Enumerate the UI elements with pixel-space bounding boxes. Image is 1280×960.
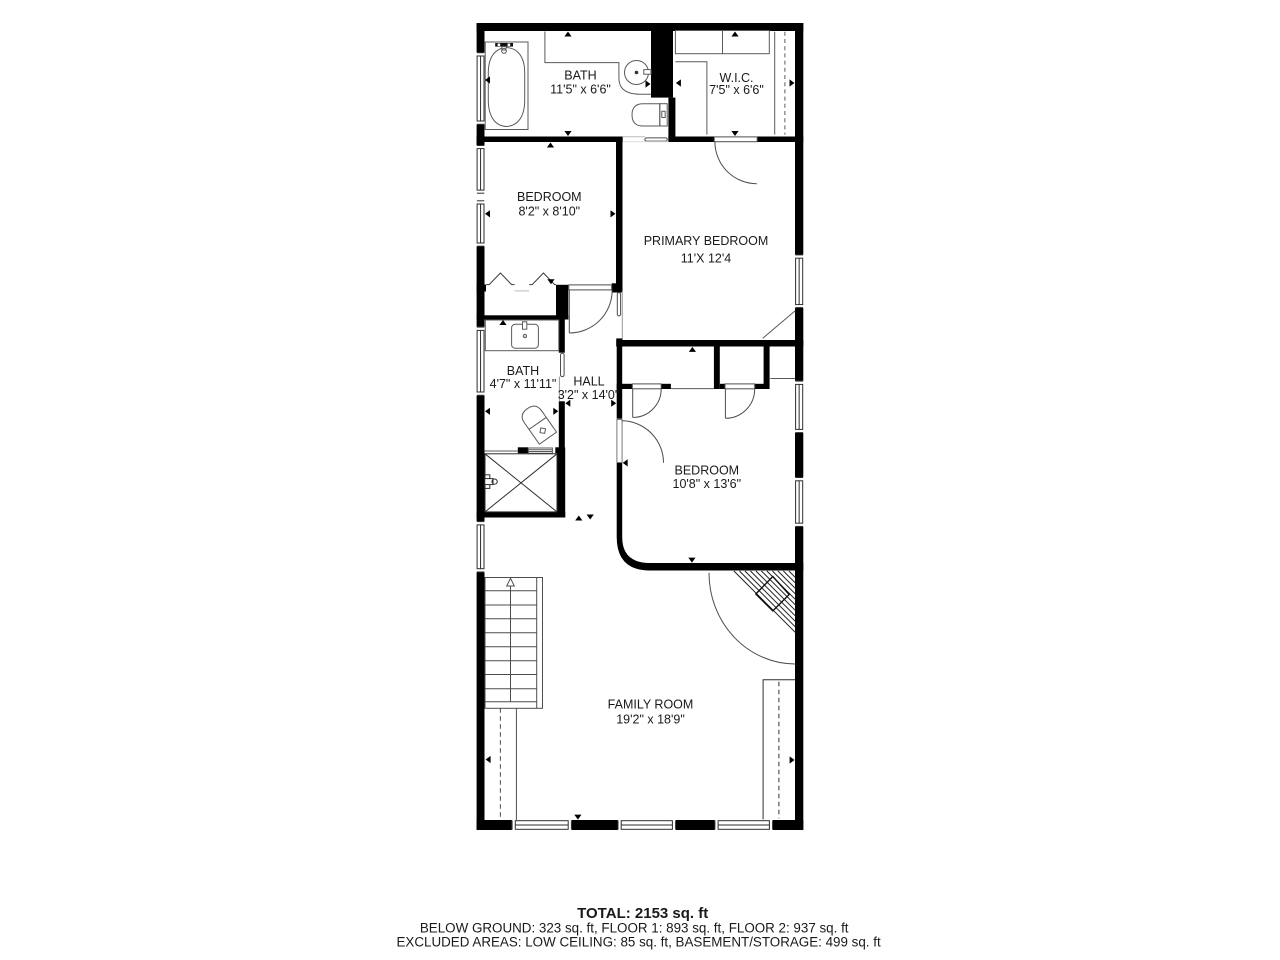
svg-text:8'2" x 8'10": 8'2" x 8'10" — [518, 204, 580, 218]
svg-text:7'5" x 6'6": 7'5" x 6'6" — [709, 83, 764, 97]
svg-text:BEDROOM: BEDROOM — [517, 190, 582, 204]
svg-text:BATH: BATH — [564, 69, 596, 83]
svg-text:PRIMARY BEDROOM: PRIMARY BEDROOM — [644, 234, 769, 248]
svg-text:EXCLUDED AREAS: LOW CEILING: 8: EXCLUDED AREAS: LOW CEILING: 85 sq. ft, … — [396, 935, 880, 950]
svg-text:HALL: HALL — [573, 374, 604, 388]
svg-text:10'8" x 13'6": 10'8" x 13'6" — [673, 477, 742, 491]
svg-text:3'2" x 14'0": 3'2" x 14'0" — [558, 388, 620, 402]
svg-text:4'7" x 11'11": 4'7" x 11'11" — [490, 377, 557, 391]
svg-text:BATH: BATH — [507, 364, 539, 378]
svg-text:TOTAL: 2153 sq. ft: TOTAL: 2153 sq. ft — [577, 905, 708, 922]
svg-text:11'5" x 6'6": 11'5" x 6'6" — [550, 82, 611, 96]
svg-text:BEDROOM: BEDROOM — [675, 464, 740, 478]
svg-text:11'X 12'4: 11'X 12'4 — [681, 251, 731, 265]
svg-text:FAMILY ROOM: FAMILY ROOM — [608, 698, 694, 712]
svg-text:19'2" x 18'9": 19'2" x 18'9" — [616, 713, 685, 727]
svg-text:BELOW GROUND: 323 sq. ft, FLOO: BELOW GROUND: 323 sq. ft, FLOOR 1: 893 s… — [420, 921, 849, 936]
